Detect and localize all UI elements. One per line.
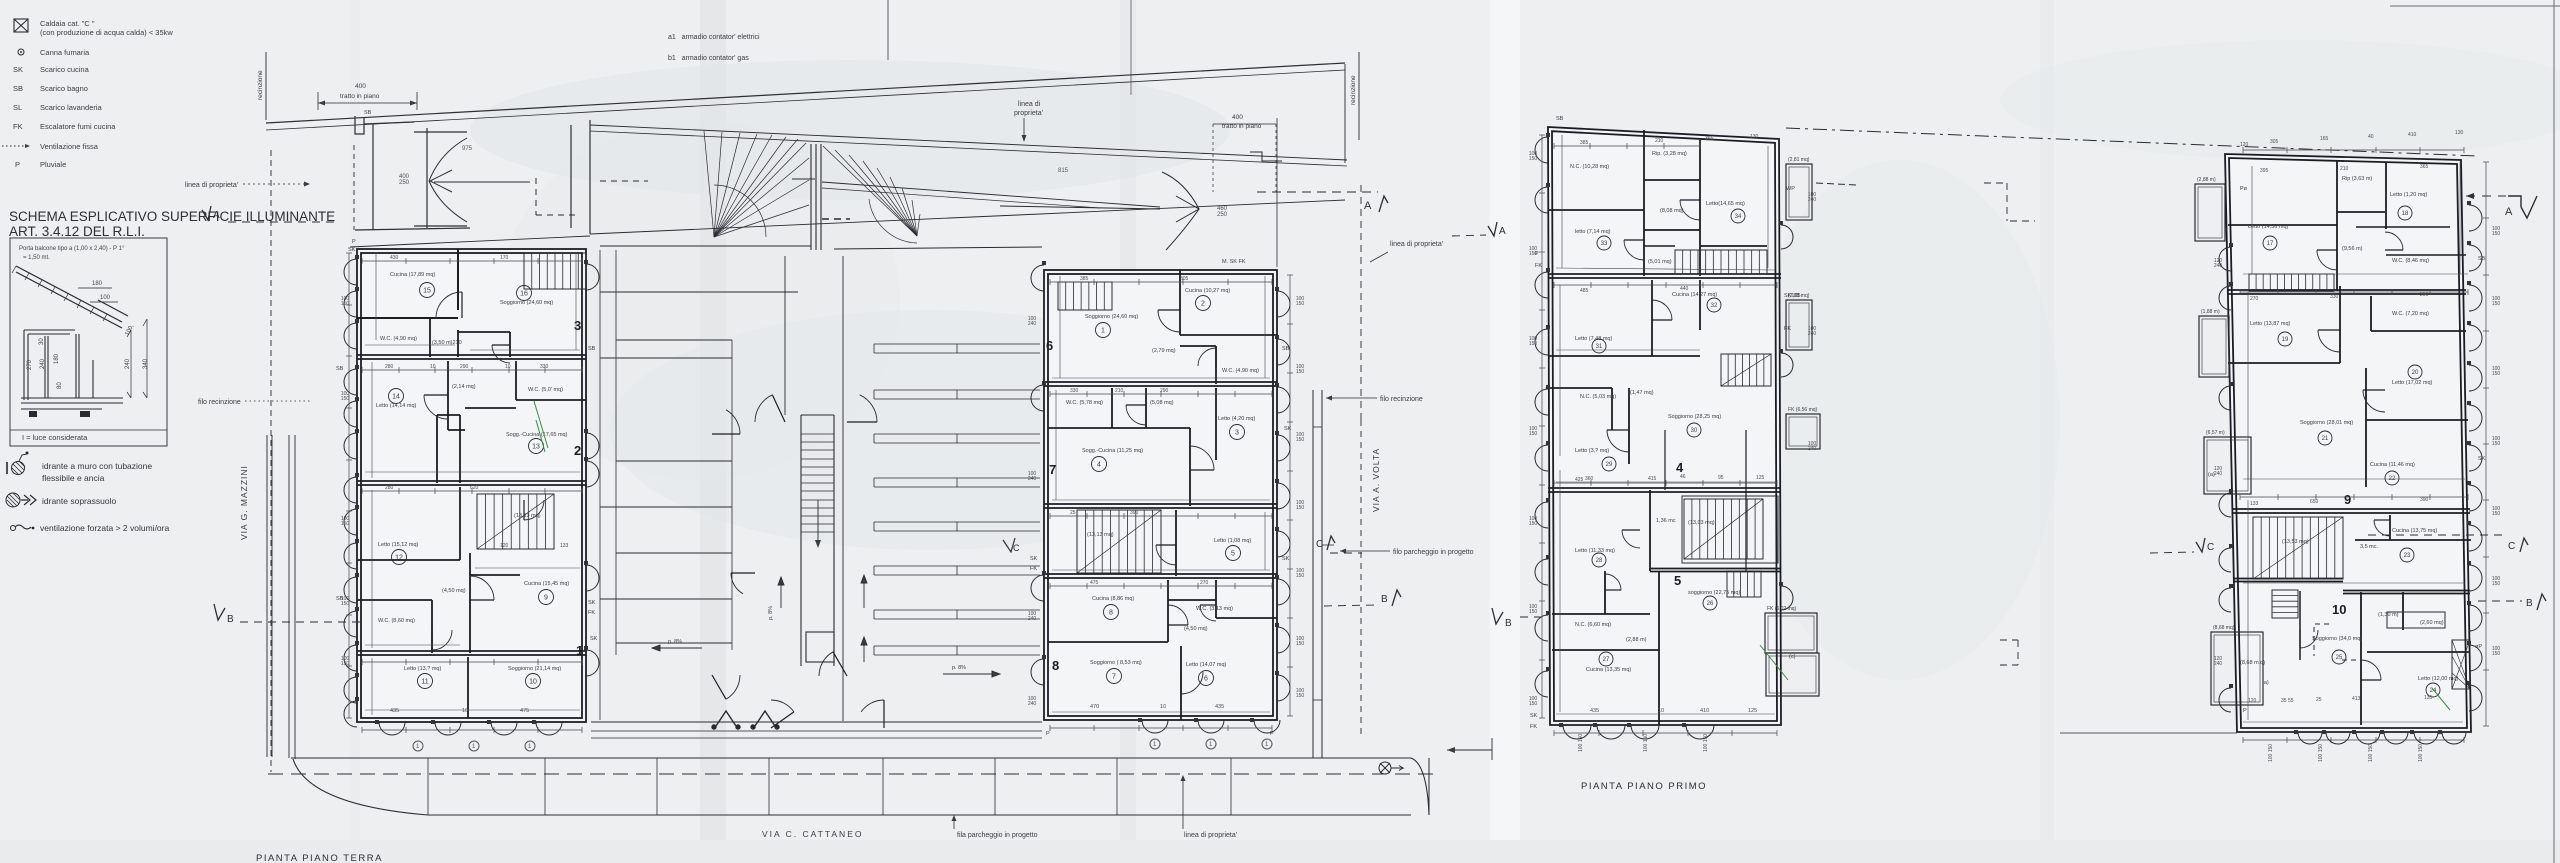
- svg-text:P: P: [2243, 708, 2247, 714]
- svg-text:9: 9: [544, 595, 548, 602]
- svg-text:4: 4: [1676, 460, 1684, 475]
- svg-text:A: A: [213, 210, 220, 221]
- svg-text:385: 385: [1580, 140, 1589, 146]
- svg-text:SL: SL: [13, 103, 22, 112]
- svg-text:B: B: [2526, 598, 2533, 609]
- svg-text:FK: FK: [1784, 326, 1791, 332]
- svg-text:SB: SB: [1556, 116, 1564, 122]
- svg-text:A: A: [1364, 200, 1372, 212]
- svg-text:SK: SK: [1030, 556, 1038, 562]
- svg-text:25: 25: [1070, 510, 1076, 516]
- svg-text:150: 150: [2492, 231, 2501, 237]
- svg-text:400: 400: [355, 83, 366, 90]
- svg-text:12: 12: [395, 555, 403, 562]
- svg-text:Cucina (13,35 mq): Cucina (13,35 mq): [1586, 667, 1631, 673]
- svg-text:10: 10: [462, 708, 468, 714]
- svg-text:Letto(14,65 mq): Letto(14,65 mq): [1706, 201, 1745, 207]
- svg-text:øP: øP: [2475, 644, 2482, 650]
- svg-text:150: 150: [1296, 369, 1305, 375]
- svg-text:N.C. (6,60 mq): N.C. (6,60 mq): [1575, 622, 1611, 628]
- svg-text:1: 1: [576, 643, 583, 658]
- svg-text:240: 240: [2214, 471, 2223, 477]
- svg-text:270: 270: [27, 359, 33, 370]
- svg-text:8: 8: [1052, 658, 1059, 673]
- svg-text:SK: SK: [348, 247, 356, 253]
- svg-text:620: 620: [470, 485, 479, 491]
- svg-text:filo recinzione: filo recinzione: [198, 399, 241, 406]
- svg-text:Letto (12,00 mq): Letto (12,00 mq): [2418, 676, 2459, 682]
- svg-text:(4,50 mq): (4,50 mq): [442, 588, 466, 594]
- svg-text:440: 440: [1680, 286, 1689, 292]
- svg-text:7: 7: [1112, 674, 1116, 681]
- svg-text:Scarico bagno: Scarico bagno: [40, 84, 88, 93]
- svg-text:Porta balcone tipo a (1,00 x 2: Porta balcone tipo a (1,00 x 2,40) - P 1…: [19, 246, 125, 252]
- svg-text:415: 415: [1648, 476, 1657, 482]
- svg-text:Letto (13,87 mq): Letto (13,87 mq): [2250, 321, 2291, 327]
- svg-text:100 150: 100 150: [2268, 744, 2274, 762]
- svg-text:240: 240: [2214, 263, 2223, 269]
- svg-text:100: 100: [100, 295, 111, 301]
- svg-text:11: 11: [421, 679, 428, 686]
- svg-text:413: 413: [2352, 696, 2361, 702]
- svg-text:B: B: [1505, 618, 1512, 629]
- svg-text:4: 4: [1097, 462, 1101, 469]
- svg-text:WP: WP: [1786, 186, 1795, 192]
- svg-text:= 1,50 mt.: = 1,50 mt.: [23, 255, 50, 261]
- svg-text:26: 26: [1707, 601, 1714, 607]
- svg-text:19: 19: [2282, 337, 2289, 343]
- svg-text:395: 395: [2260, 168, 2269, 174]
- svg-text:15: 15: [423, 288, 431, 295]
- svg-text:150: 150: [1296, 693, 1305, 699]
- svg-text:(13,13 mq): (13,13 mq): [1087, 532, 1114, 538]
- svg-text:125: 125: [1756, 475, 1765, 481]
- svg-text:150: 150: [2492, 581, 2501, 587]
- svg-text:(5,08 mq): (5,08 mq): [1150, 400, 1174, 406]
- svg-text:letto (7,14 mq): letto (7,14 mq): [1575, 229, 1611, 235]
- svg-text:18: 18: [2402, 211, 2409, 217]
- svg-text:Letto (15,12 mq): Letto (15,12 mq): [378, 542, 419, 548]
- svg-text:240: 240: [1808, 197, 1817, 203]
- svg-text:23: 23: [2404, 553, 2411, 559]
- svg-text:100 150: 100 150: [2418, 744, 2424, 762]
- svg-text:3: 3: [574, 318, 581, 333]
- svg-text:240: 240: [125, 358, 131, 369]
- svg-text:150: 150: [1529, 156, 1538, 162]
- svg-text:(1,88 m): (1,88 m): [2201, 309, 2220, 315]
- svg-text:idrante a muro con tubazione: idrante a muro con tubazione: [42, 461, 152, 471]
- svg-text:290: 290: [460, 364, 469, 370]
- svg-text:46: 46: [1680, 474, 1686, 480]
- svg-text:W.C. (5,78 mq): W.C. (5,78 mq): [1066, 400, 1103, 406]
- svg-text:6: 6: [1046, 338, 1053, 353]
- svg-text:7: 7: [1049, 462, 1056, 477]
- svg-text:linea di proprieta': linea di proprieta': [185, 182, 238, 189]
- svg-text:125: 125: [1748, 708, 1757, 714]
- svg-text:150: 150: [341, 301, 350, 307]
- svg-text:W.C. (8,46 mq): W.C. (8,46 mq): [2392, 258, 2429, 264]
- svg-text:10: 10: [505, 364, 511, 370]
- svg-text:Rip (3,63 m): Rip (3,63 m): [2342, 176, 2372, 182]
- svg-text:150: 150: [1296, 641, 1305, 647]
- svg-text:W.C. (7,20 mq): W.C. (7,20 mq): [2392, 311, 2429, 317]
- svg-text:150: 150: [1529, 521, 1538, 527]
- svg-text:240: 240: [2214, 661, 2223, 667]
- svg-text:recinzione: recinzione: [1350, 75, 1357, 105]
- svg-text:filo parcheggio in progetto: filo parcheggio in progetto: [1393, 549, 1474, 556]
- svg-text:ART. 3.4.12 DEL R.L.I.: ART. 3.4.12 DEL R.L.I.: [9, 224, 145, 239]
- svg-text:A: A: [1499, 226, 1506, 237]
- svg-text:(13,13 mq): (13,13 mq): [514, 513, 541, 519]
- svg-text:Cucina (10,27 mq): Cucina (10,27 mq): [1185, 288, 1230, 294]
- svg-text:133: 133: [560, 543, 569, 549]
- svg-text:C: C: [2207, 542, 2214, 553]
- svg-text:250: 250: [399, 180, 410, 186]
- svg-text:120: 120: [2248, 698, 2257, 704]
- svg-text:430: 430: [390, 255, 399, 261]
- svg-text:150: 150: [2492, 651, 2501, 657]
- svg-text:280: 280: [385, 485, 394, 491]
- svg-text:Caldaia cat. "C ": Caldaia cat. "C ": [40, 19, 95, 28]
- svg-text:16: 16: [520, 291, 528, 298]
- svg-text:240: 240: [1028, 476, 1037, 482]
- svg-text:linea di proprieta': linea di proprieta': [1184, 832, 1237, 839]
- svg-text:100 150: 100 150: [2368, 744, 2374, 762]
- svg-text:Escalatore fumi cucina: Escalatore fumi cucina: [40, 122, 116, 131]
- svg-text:SB: SB: [1282, 346, 1290, 352]
- svg-text:(1,30 m): (1,30 m): [2378, 612, 2399, 618]
- svg-text:PIANTA PIANO PRIMO: PIANTA PIANO PRIMO: [1581, 781, 1707, 792]
- svg-text:27: 27: [1603, 657, 1610, 663]
- svg-text:330: 330: [2330, 294, 2339, 300]
- svg-text:Letto (14,07 mq): Letto (14,07 mq): [1186, 662, 1227, 668]
- svg-text:Soggiorno (28,25 mq): Soggiorno (28,25 mq): [1668, 414, 1721, 420]
- svg-text:340: 340: [143, 358, 149, 369]
- svg-text:Scarico cucina: Scarico cucina: [40, 65, 90, 74]
- svg-text:(2,60 mq): (2,60 mq): [2420, 620, 2444, 626]
- svg-text:(5,01 mq): (5,01 mq): [1648, 259, 1672, 265]
- svg-text:P: P: [15, 160, 20, 169]
- svg-text:330: 330: [1070, 388, 1079, 394]
- svg-text:135: 135: [2424, 695, 2433, 701]
- svg-text:435: 435: [1215, 704, 1224, 710]
- svg-text:410: 410: [1700, 708, 1709, 714]
- svg-text:Canna fumaria: Canna fumaria: [40, 48, 90, 57]
- svg-text:C: C: [1316, 539, 1323, 550]
- svg-text:FK: FK: [588, 610, 595, 616]
- svg-text:(13,53 mq): (13,53 mq): [2282, 539, 2309, 545]
- svg-text:30: 30: [1691, 428, 1698, 434]
- svg-text:Cucina (14,27 mq): Cucina (14,27 mq): [1672, 292, 1717, 298]
- svg-text:210: 210: [1655, 138, 1664, 144]
- svg-text:40: 40: [2368, 134, 2374, 140]
- svg-text:240: 240: [1808, 331, 1817, 337]
- svg-text:Soggiorno (21,14 mq): Soggiorno (21,14 mq): [508, 666, 561, 672]
- svg-text:SB: SB: [364, 110, 372, 116]
- svg-text:b1 armadio contator' gas: b1 armadio contator' gas: [668, 55, 749, 62]
- svg-text:270: 270: [1200, 580, 1209, 586]
- svg-text:10: 10: [430, 364, 436, 370]
- svg-text:305: 305: [2270, 139, 2279, 145]
- svg-text:165: 165: [2320, 136, 2329, 142]
- svg-text:(13,03 mq): (13,03 mq): [1688, 520, 1715, 526]
- svg-text:10: 10: [529, 679, 537, 686]
- svg-text:150: 150: [1296, 505, 1305, 511]
- svg-text:95: 95: [1718, 475, 1724, 481]
- svg-text:400: 400: [1232, 114, 1243, 121]
- svg-text:14: 14: [392, 394, 400, 401]
- svg-text:a1 armadio contator' elettri: a1 armadio contator' elettrici: [668, 34, 760, 41]
- svg-text:I = luce considerata: I = luce considerata: [22, 433, 88, 442]
- svg-text:recinzione: recinzione: [257, 70, 264, 100]
- svg-text:Cucina (13,75 mq): Cucina (13,75 mq): [2392, 528, 2437, 534]
- svg-text:SK: SK: [588, 600, 596, 606]
- svg-text:FK (6,02 mq): FK (6,02 mq): [1767, 606, 1797, 612]
- svg-text:(2,81 mq): (2,81 mq): [1788, 157, 1810, 163]
- svg-text:C: C: [2508, 541, 2515, 552]
- svg-text:VIA C. CATTANEO: VIA C. CATTANEO: [762, 829, 863, 839]
- svg-text:150: 150: [341, 521, 350, 527]
- svg-text:PIANTA PIANO TERRA: PIANTA PIANO TERRA: [256, 853, 383, 863]
- svg-text:150: 150: [341, 396, 350, 402]
- svg-text:SK: SK: [1284, 426, 1292, 432]
- svg-text:SK125: SK125: [1784, 293, 1801, 299]
- svg-text:6: 6: [1204, 676, 1208, 683]
- svg-text:(2,79 mq): (2,79 mq): [1152, 348, 1176, 354]
- svg-text:5: 5: [1674, 573, 1681, 588]
- svg-text:P: P: [1270, 731, 1274, 737]
- svg-text:330: 330: [540, 364, 549, 370]
- svg-text:Cucina (15,45 mq): Cucina (15,45 mq): [524, 581, 569, 587]
- svg-text:SB: SB: [588, 346, 596, 352]
- svg-text:W.C. (8,60 mq): W.C. (8,60 mq): [378, 618, 415, 624]
- svg-text:(con produzione di acqua calda: (con produzione di acqua calda) < 35kw: [40, 28, 173, 37]
- svg-text:FK: FK: [1535, 263, 1542, 269]
- svg-text:150: 150: [1296, 437, 1305, 443]
- svg-text:150: 150: [1529, 431, 1538, 437]
- svg-text:29: 29: [1606, 462, 1613, 468]
- svg-text:(8,68 m q): (8,68 m q): [2240, 660, 2265, 666]
- svg-text:270: 270: [2250, 296, 2259, 302]
- svg-text:150: 150: [1529, 701, 1538, 707]
- svg-text:290: 290: [1160, 388, 1169, 394]
- svg-text:Scarico lavanderia: Scarico lavanderia: [40, 103, 103, 112]
- svg-text:9: 9: [2344, 492, 2351, 507]
- svg-text:FK: FK: [13, 122, 23, 131]
- svg-text:Soggiorno ( 8,53 mq): Soggiorno ( 8,53 mq): [1090, 660, 1142, 666]
- svg-text:240: 240: [1028, 321, 1037, 327]
- svg-text:8: 8: [1109, 610, 1113, 617]
- svg-text:N.C. (5,03 mq): N.C. (5,03 mq): [1580, 394, 1616, 400]
- svg-text:(6,57 m): (6,57 m): [2206, 430, 2225, 436]
- svg-text:100 150: 100 150: [1643, 734, 1649, 752]
- svg-text:25: 25: [2316, 697, 2322, 703]
- svg-text:1,36 mc: 1,36 mc: [1656, 518, 1676, 524]
- svg-text:130: 130: [1750, 134, 1759, 140]
- svg-text:SK: SK: [13, 65, 23, 74]
- svg-text:SB: SB: [336, 596, 344, 602]
- svg-text:Letto (1,08 mq): Letto (1,08 mq): [1214, 538, 1251, 544]
- svg-text:Letto (14,36 mq): Letto (14,36 mq): [2248, 224, 2289, 230]
- svg-text:Cucina (11,46 mq): Cucina (11,46 mq): [2370, 462, 2415, 468]
- svg-text:p. 8%: p. 8%: [668, 639, 682, 645]
- svg-text:10: 10: [1160, 704, 1166, 710]
- svg-text:650: 650: [2310, 499, 2319, 505]
- svg-text:SK: SK: [590, 636, 598, 642]
- svg-text:Pluviale: Pluviale: [40, 160, 66, 169]
- svg-text:(8,68 mq): (8,68 mq): [2213, 625, 2235, 631]
- svg-text:VIA A. VOLTA: VIA A. VOLTA: [1371, 448, 1381, 512]
- svg-text:475: 475: [1090, 580, 1099, 586]
- svg-text:240: 240: [1808, 446, 1817, 452]
- svg-text:Letto (4,20 mq): Letto (4,20 mq): [1218, 416, 1255, 422]
- svg-text:150: 150: [1296, 573, 1305, 579]
- svg-text:Cucina (17,89 mq): Cucina (17,89 mq): [390, 272, 435, 278]
- svg-text:Letto (1,20 mq): Letto (1,20 mq): [2390, 192, 2427, 198]
- svg-text:290: 290: [2420, 292, 2429, 298]
- svg-text:P: P: [1046, 731, 1050, 737]
- svg-text:(9,56 m): (9,56 m): [2342, 246, 2363, 252]
- svg-text:975: 975: [462, 146, 473, 152]
- svg-text:p. 8%: p. 8%: [952, 665, 966, 671]
- svg-text:13: 13: [532, 444, 540, 451]
- svg-text:W.C. (3,13 mq): W.C. (3,13 mq): [1196, 606, 1233, 612]
- svg-text:435: 435: [1590, 708, 1599, 714]
- svg-text:(a): (a): [2262, 680, 2269, 686]
- svg-text:21: 21: [2322, 436, 2329, 442]
- svg-text:28: 28: [1596, 558, 1603, 564]
- svg-text:N.C. (10,28 mq): N.C. (10,28 mq): [1570, 164, 1609, 170]
- svg-text:C: C: [1013, 543, 1020, 553]
- svg-text:250: 250: [1217, 212, 1228, 218]
- svg-text:(2,14 mq): (2,14 mq): [452, 384, 476, 390]
- svg-text:SK: SK: [1282, 556, 1290, 562]
- svg-text:filo recinzione: filo recinzione: [1380, 396, 1423, 403]
- svg-text:360: 360: [1585, 476, 1594, 482]
- svg-text:150: 150: [1529, 341, 1538, 347]
- svg-text:365: 365: [2420, 164, 2429, 170]
- svg-text:35 55: 35 55: [2281, 698, 2294, 704]
- svg-text:80: 80: [57, 382, 63, 389]
- svg-text:Rip. (3,28 mq): Rip. (3,28 mq): [1652, 151, 1687, 157]
- svg-text:34: 34: [1735, 214, 1742, 220]
- svg-text:W.C. (5,0' mq): W.C. (5,0' mq): [528, 387, 563, 393]
- svg-text:Ventilazione fissa: Ventilazione fissa: [40, 142, 99, 151]
- svg-text:Sogg.-Cucina (17,65 mq): Sogg.-Cucina (17,65 mq): [506, 432, 568, 438]
- svg-text:10: 10: [2332, 602, 2346, 617]
- svg-text:100 150: 100 150: [1578, 734, 1584, 752]
- svg-text:SK: SK: [1530, 713, 1538, 719]
- svg-text:Soggiorno (28,01 mq): Soggiorno (28,01 mq): [2300, 420, 2353, 426]
- svg-text:150: 150: [2492, 511, 2501, 517]
- svg-text:100 150: 100 150: [2318, 744, 2324, 762]
- svg-text:W.C. (4,90 mq): W.C. (4,90 mq): [380, 336, 417, 342]
- svg-text:W.C. (4,90 mq): W.C. (4,90 mq): [1222, 368, 1259, 374]
- svg-text:470: 470: [1090, 704, 1099, 710]
- svg-text:B: B: [1381, 594, 1388, 605]
- svg-text:P: P: [1535, 251, 1539, 257]
- svg-text:linea di proprieta': linea di proprieta': [1390, 241, 1443, 248]
- svg-text:100 150: 100 150: [1703, 734, 1709, 752]
- svg-text:17: 17: [2267, 241, 2274, 247]
- svg-text:305: 305: [1180, 276, 1189, 282]
- svg-text:FK: FK: [1030, 566, 1037, 572]
- svg-text:180: 180: [54, 353, 60, 364]
- svg-text:Letto (11,33 mq): Letto (11,33 mq): [1575, 548, 1615, 554]
- svg-text:3,5 mc.: 3,5 mc.: [2360, 544, 2379, 550]
- svg-text:Pø: Pø: [2240, 186, 2248, 192]
- svg-text:150: 150: [2492, 371, 2501, 377]
- svg-text:240: 240: [1028, 701, 1037, 707]
- svg-text:fila parcheggio in progetto: fila parcheggio in progetto: [957, 832, 1038, 839]
- svg-text:idrante soprassuolo: idrante soprassuolo: [42, 496, 116, 506]
- svg-text:240: 240: [40, 358, 46, 369]
- svg-text:180: 180: [92, 281, 103, 287]
- svg-text:425: 425: [1575, 477, 1584, 483]
- svg-text:Letto (17,02 mq): Letto (17,02 mq): [2392, 380, 2433, 386]
- svg-text:SB: SB: [336, 366, 344, 372]
- svg-text:FK: FK: [1530, 724, 1537, 730]
- svg-text:ventilazione forzata > 2 volum: ventilazione forzata > 2 volumi/ora: [40, 523, 169, 533]
- svg-text:Soggiorno (34,0 mq): Soggiorno (34,0 mq): [2312, 636, 2362, 642]
- svg-text:SB: SB: [13, 84, 23, 93]
- svg-text:(2,88 m): (2,88 m): [2197, 177, 2216, 183]
- svg-text:Soggiorno (24,60 mq): Soggiorno (24,60 mq): [1085, 314, 1138, 320]
- svg-text:Letto (3,? mq): Letto (3,? mq): [1575, 448, 1609, 454]
- svg-text:150: 150: [2492, 301, 2501, 307]
- svg-text:p. 8%: p. 8%: [768, 606, 774, 620]
- svg-text:485: 485: [1580, 288, 1589, 294]
- svg-text:M. SK FK: M. SK FK: [1222, 259, 1246, 265]
- svg-text:31: 31: [1596, 344, 1603, 350]
- svg-text:(8,08 mq): (8,08 mq): [1660, 208, 1684, 214]
- svg-text:120: 120: [500, 543, 509, 549]
- svg-text:SK: SK: [2478, 456, 2486, 462]
- svg-text:Cucina (8,86 mq): Cucina (8,86 mq): [1092, 596, 1134, 602]
- svg-text:365: 365: [1705, 136, 1714, 142]
- svg-text:32: 32: [1711, 303, 1718, 309]
- svg-text:(4,50 mq): (4,50 mq): [1184, 626, 1208, 632]
- svg-text:390: 390: [2420, 497, 2429, 503]
- svg-text:10: 10: [1658, 708, 1664, 714]
- svg-text:170: 170: [500, 255, 509, 261]
- svg-text:150: 150: [2492, 441, 2501, 447]
- svg-text:30: 30: [39, 338, 45, 345]
- svg-text:proprieta': proprieta': [1014, 110, 1043, 117]
- svg-text:150: 150: [1296, 301, 1305, 307]
- svg-text:33: 33: [1601, 241, 1608, 247]
- svg-text:SB: SB: [2478, 256, 2486, 262]
- svg-text:A: A: [2505, 206, 2513, 218]
- svg-text:flessibile e ancia: flessibile e ancia: [42, 473, 105, 483]
- svg-text:linea di: linea di: [1018, 101, 1041, 108]
- svg-text:390: 390: [1130, 510, 1139, 516]
- svg-text:210: 210: [2340, 166, 2349, 172]
- svg-text:1: 1: [1101, 328, 1105, 335]
- svg-text:Soggiorno (24,60 mq): Soggiorno (24,60 mq): [500, 300, 553, 306]
- svg-text:210: 210: [1115, 388, 1124, 394]
- svg-text:soggiorno (22,75 mq): soggiorno (22,75 mq): [1688, 590, 1740, 596]
- svg-text:B: B: [227, 614, 234, 625]
- svg-text:20: 20: [2412, 370, 2419, 376]
- svg-text:435: 435: [390, 708, 399, 714]
- svg-text:815: 815: [1058, 168, 1069, 174]
- svg-text:150: 150: [1529, 609, 1538, 615]
- svg-text:Sogg.-Cucina (11,25 mq): Sogg.-Cucina (11,25 mq): [1082, 448, 1143, 454]
- svg-text:410: 410: [2408, 132, 2417, 138]
- svg-text:P: P: [352, 239, 356, 245]
- svg-text:3: 3: [1235, 430, 1239, 437]
